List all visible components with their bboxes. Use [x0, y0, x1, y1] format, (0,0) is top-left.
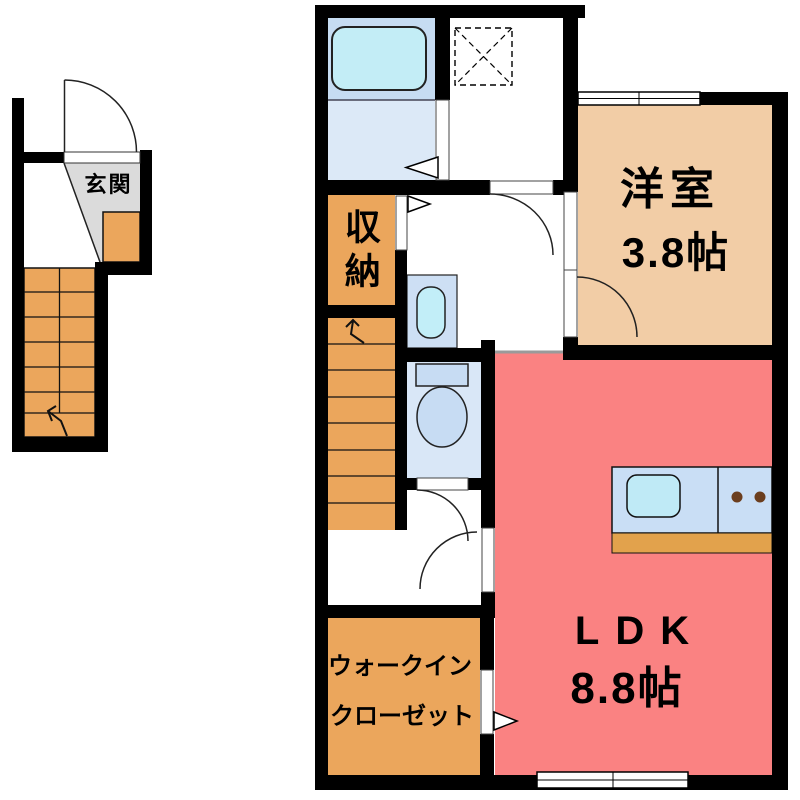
walk-in-closet-floor	[328, 618, 480, 775]
washbasin-sink	[417, 287, 445, 338]
hallway-lower-floor	[328, 530, 481, 605]
entry-threshold	[64, 152, 140, 163]
toilet	[416, 364, 468, 447]
bathtub	[332, 27, 426, 90]
entrance-section-floors	[24, 163, 140, 437]
stove-burner-icon	[732, 492, 743, 503]
ldk-size-label: 8.8帖	[525, 666, 729, 712]
wic-label-line2: クローゼット	[330, 704, 460, 729]
bedroom-name-label: 洋室	[568, 167, 772, 213]
toilet-tank	[416, 364, 468, 386]
washing-machine-space	[455, 28, 512, 85]
staircase-upper-floor	[328, 318, 395, 530]
entry-door	[64, 80, 140, 163]
bedroom-size-label: 3.8帖	[574, 231, 778, 275]
toilet-bowl	[417, 387, 467, 447]
washbasin	[407, 275, 457, 348]
bathroom-fixtures	[328, 27, 435, 100]
wic-label-line1: ウォークイン	[328, 654, 448, 679]
kitchen-counter-base	[612, 533, 772, 553]
bedroom-floor	[578, 105, 772, 345]
kitchen	[612, 467, 772, 553]
genkan-step	[103, 212, 140, 262]
stove-burner-icon	[755, 492, 766, 503]
genkan-label: 玄関	[62, 173, 155, 196]
bedroom-window	[578, 92, 700, 105]
entry-door-arc	[65, 80, 137, 152]
bedroom-door-leaf	[564, 270, 577, 337]
storage-label: 収納	[341, 208, 379, 296]
ldk-window	[537, 772, 688, 788]
floor-plan-page: 玄関 収納 洋室 3.8帖 LDK 8.8帖 ウォークイン クローゼット	[0, 0, 800, 800]
ldk-name-label: LDK	[538, 610, 742, 652]
kitchen-sink	[627, 475, 680, 517]
